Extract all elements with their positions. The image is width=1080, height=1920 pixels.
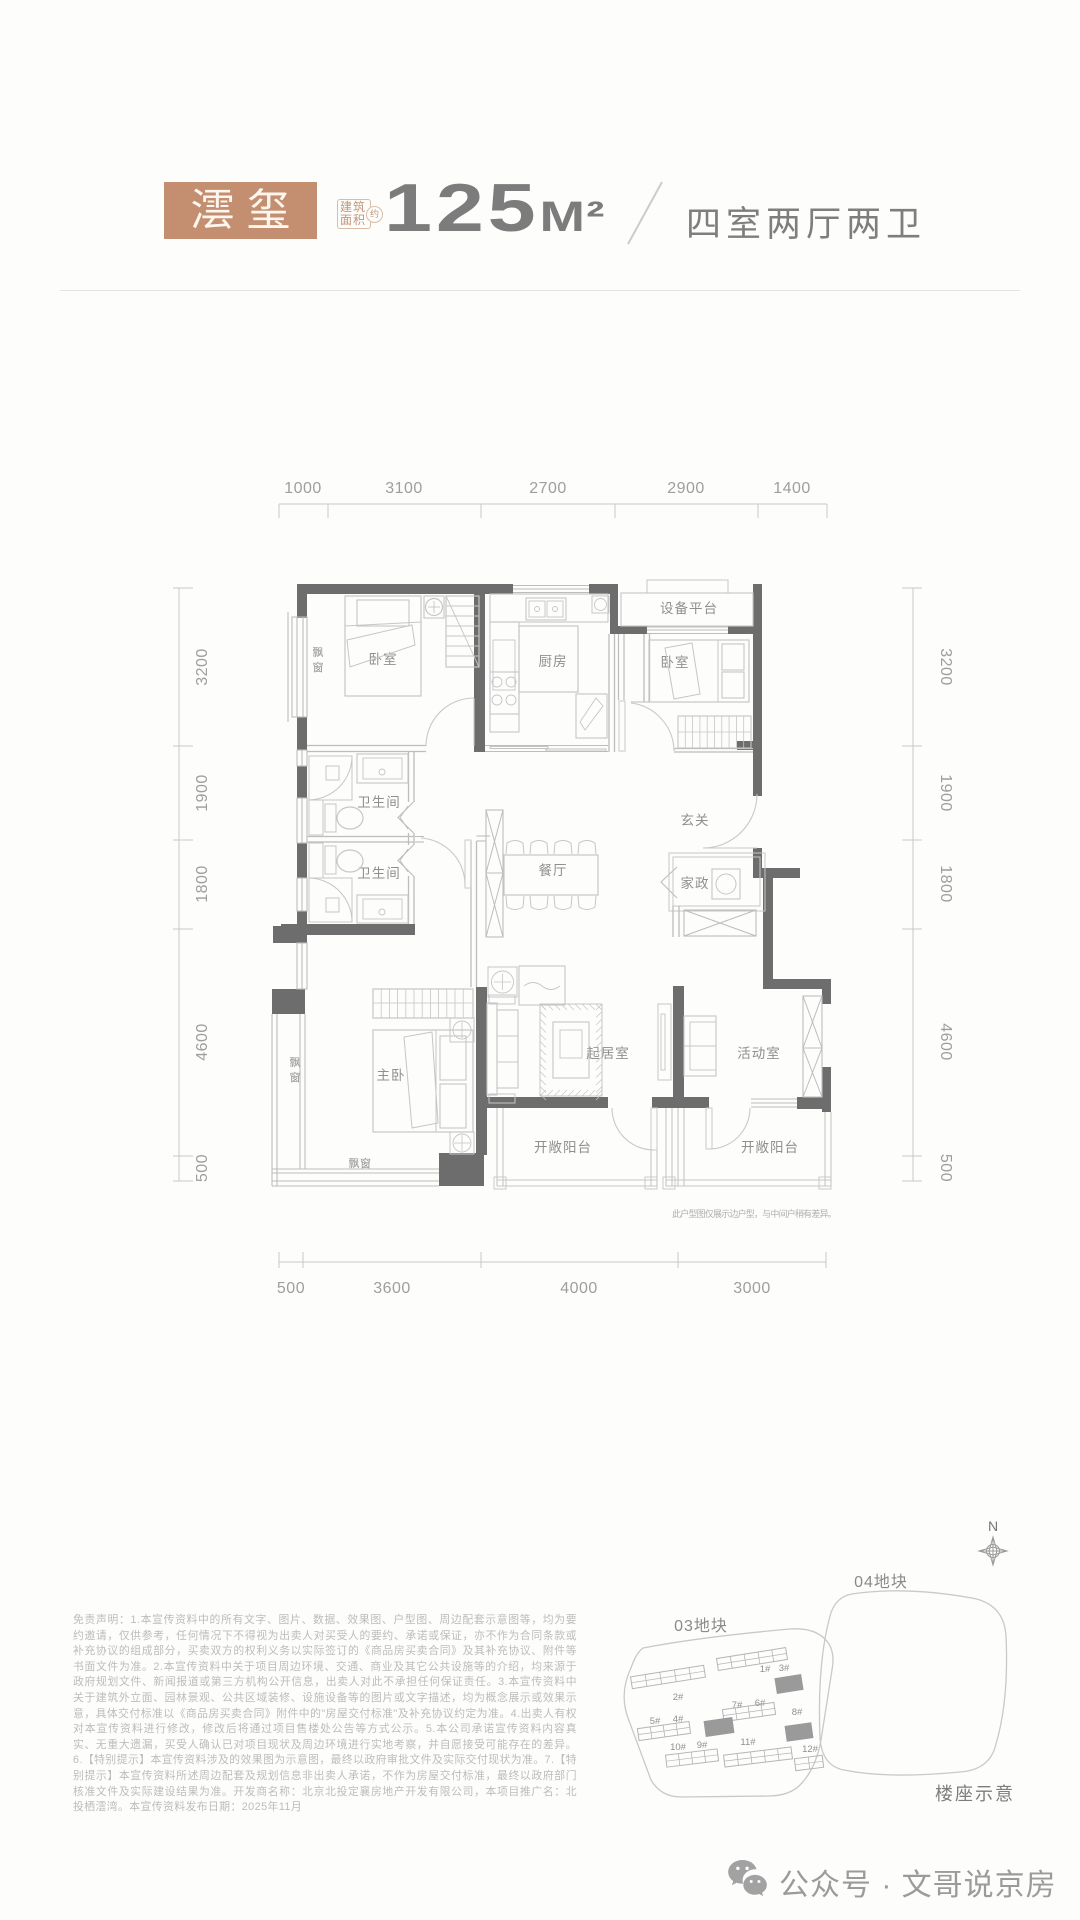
svg-text:1#: 1# — [760, 1664, 771, 1675]
svg-text:4#: 4# — [673, 1714, 684, 1725]
svg-text:04地块: 04地块 — [854, 1573, 908, 1591]
svg-text:5#: 5# — [650, 1716, 661, 1727]
svg-text:9#: 9# — [697, 1740, 708, 1751]
svg-text:11#: 11# — [740, 1737, 756, 1748]
svg-text:7#: 7# — [732, 1700, 743, 1711]
svg-text:6#: 6# — [755, 1698, 766, 1709]
svg-text:楼座示意: 楼座示意 — [935, 1784, 1015, 1804]
svg-text:12#: 12# — [802, 1744, 819, 1755]
svg-text:8#: 8# — [792, 1707, 803, 1718]
svg-text:3#: 3# — [779, 1663, 790, 1674]
svg-text:10#: 10# — [670, 1742, 687, 1753]
svg-text:N: N — [988, 1518, 998, 1534]
svg-text:03地块: 03地块 — [674, 1617, 728, 1635]
svg-text:2#: 2# — [673, 1692, 684, 1703]
